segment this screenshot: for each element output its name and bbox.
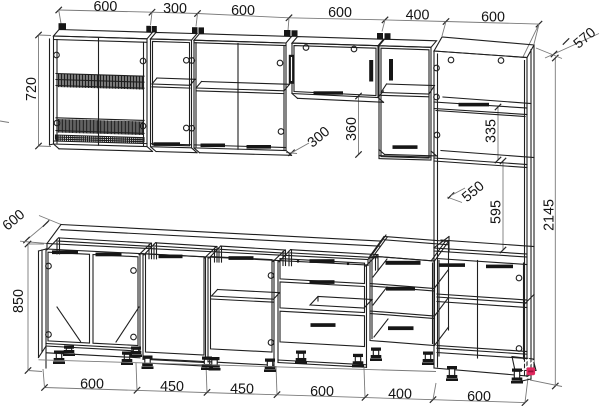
svg-text:600: 600 [328, 5, 352, 21]
svg-text:600: 600 [310, 384, 334, 400]
svg-text:2145: 2145 [542, 199, 558, 231]
svg-text:600: 600 [467, 389, 491, 405]
svg-text:600: 600 [80, 376, 104, 392]
svg-text:450: 450 [230, 381, 254, 397]
svg-text:300: 300 [163, 1, 187, 17]
svg-text:600: 600 [231, 3, 255, 19]
svg-text:335: 335 [484, 119, 500, 143]
svg-text:360: 360 [344, 117, 360, 141]
svg-text:400: 400 [406, 7, 430, 23]
svg-text:600: 600 [93, 0, 117, 15]
svg-text:400: 400 [388, 386, 412, 402]
svg-text:720: 720 [24, 77, 40, 101]
svg-text:450: 450 [160, 379, 184, 395]
svg-text:850: 850 [11, 289, 27, 313]
svg-text:600: 600 [481, 10, 505, 26]
svg-text:595: 595 [489, 200, 505, 224]
